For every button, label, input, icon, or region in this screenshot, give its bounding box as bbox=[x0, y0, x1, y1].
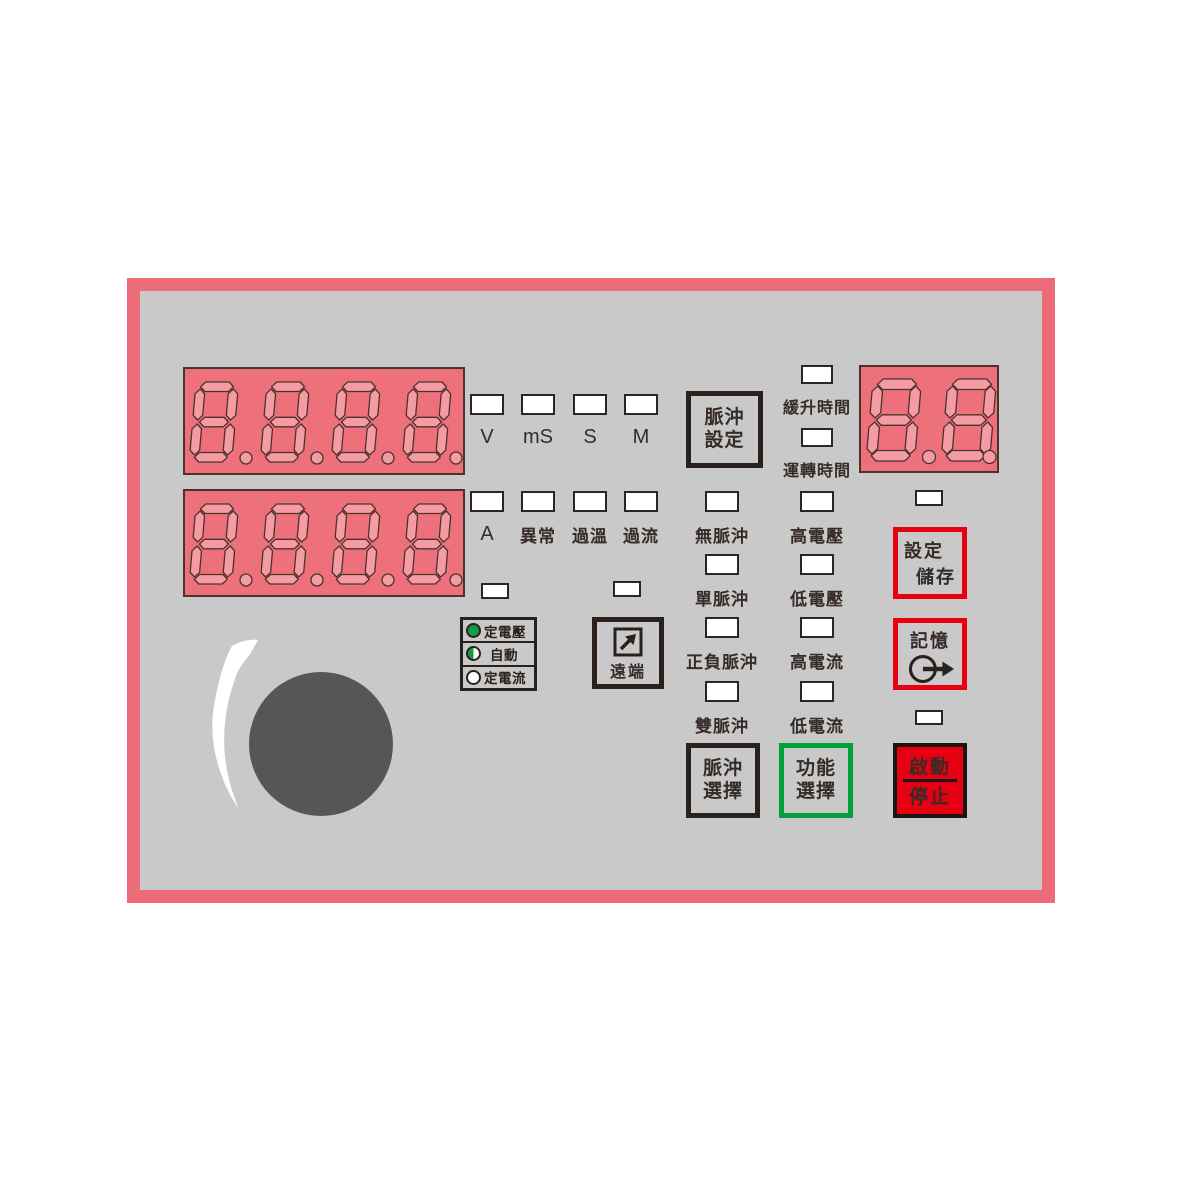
indicator-label: 正負脈沖 bbox=[686, 648, 758, 673]
indicator-label: 雙脈沖 bbox=[695, 712, 749, 737]
indicator-lamp bbox=[800, 617, 834, 638]
indicator-label: 高電流 bbox=[790, 648, 844, 673]
indicator-ramp-time: 緩升時間 bbox=[772, 365, 862, 418]
indicator-high-voltage: 高電壓 bbox=[772, 491, 862, 547]
indicator-label: M bbox=[633, 426, 650, 449]
indicator-label: 高電壓 bbox=[790, 522, 844, 547]
cv-led-icon bbox=[466, 623, 481, 638]
start-stop-button[interactable]: 啟動 停止 bbox=[893, 743, 967, 818]
indicator-lamp bbox=[705, 681, 739, 702]
auto-led-icon bbox=[466, 646, 481, 661]
indicator-label: S bbox=[583, 426, 596, 449]
indicator-low-current: 低電流 bbox=[772, 681, 862, 737]
button-label-line2: 選擇 bbox=[703, 781, 743, 803]
indicator-lamp bbox=[705, 491, 739, 512]
indicator-lamp-unlabeled bbox=[481, 583, 509, 599]
led-row-cv: 定電壓 bbox=[463, 620, 534, 643]
pulse-select-button[interactable]: 脈沖 選擇 bbox=[686, 743, 760, 818]
led-label: 定電壓 bbox=[484, 621, 526, 641]
cc-led-icon bbox=[466, 670, 481, 685]
button-label: 記憶 bbox=[910, 627, 950, 653]
rotary-knob[interactable] bbox=[249, 672, 393, 816]
led-row-cc: 定電流 bbox=[463, 667, 534, 688]
indicator-label: 低電流 bbox=[790, 712, 844, 737]
regulation-led-panel: 定電壓 自動 定電流 bbox=[460, 617, 537, 691]
indicator-lamp-unlabeled bbox=[915, 490, 943, 506]
button-label-line2: 設定 bbox=[704, 430, 744, 452]
indicator-unit-m: M bbox=[601, 394, 681, 449]
indicator-over-current: 過流 bbox=[601, 491, 681, 547]
led-row-auto: 自動 bbox=[463, 643, 534, 666]
button-label-line1: 脈沖 bbox=[703, 758, 743, 780]
pulse-setting-button[interactable]: 脈沖 設定 bbox=[686, 391, 763, 468]
indicator-label: 緩升時間 bbox=[783, 394, 851, 418]
indicator-lamp bbox=[624, 491, 658, 512]
button-label-stop: 停止 bbox=[909, 782, 951, 809]
indicator-single-pulse: 單脈沖 bbox=[677, 554, 767, 610]
button-label: 遠端 bbox=[610, 658, 646, 682]
remote-button[interactable]: 遠端 bbox=[592, 617, 664, 689]
indicator-label: 無脈沖 bbox=[695, 522, 749, 547]
set-store-button[interactable]: 設定 儲存 bbox=[893, 527, 967, 599]
button-label-start: 啟動 bbox=[909, 752, 951, 779]
indicator-lamp bbox=[800, 554, 834, 575]
indicator-lamp bbox=[800, 681, 834, 702]
indicator-label: V bbox=[480, 426, 493, 449]
seven-segment-display-memory bbox=[859, 365, 999, 473]
indicator-run-time: 運轉時間 bbox=[772, 428, 862, 481]
indicator-lamp-unlabeled bbox=[915, 710, 943, 725]
seven-segment-display-upper bbox=[183, 367, 465, 475]
indicator-double-pulse: 雙脈沖 bbox=[677, 681, 767, 737]
indicator-pos-neg-pulse: 正負脈沖 bbox=[677, 617, 767, 673]
seven-segment-display-lower bbox=[183, 489, 465, 597]
indicator-low-voltage: 低電壓 bbox=[772, 554, 862, 610]
indicator-lamp bbox=[801, 365, 833, 384]
indicator-lamp bbox=[800, 491, 834, 512]
indicator-label: mS bbox=[523, 426, 553, 449]
function-select-button[interactable]: 功能 選擇 bbox=[779, 743, 853, 818]
led-label: 定電流 bbox=[484, 667, 526, 687]
page-background: V mS S M A 異常 過溫 過流 緩升時間 運轉時間 無脈沖 bbox=[0, 0, 1182, 1182]
memory-button[interactable]: 記憶 bbox=[893, 618, 967, 690]
indicator-high-current: 高電流 bbox=[772, 617, 862, 673]
button-label-store: 儲存 bbox=[916, 563, 956, 589]
remote-arrow-icon bbox=[613, 627, 643, 657]
led-label: 自動 bbox=[490, 644, 518, 664]
indicator-label: 單脈沖 bbox=[695, 585, 749, 610]
indicator-label: 低電壓 bbox=[790, 585, 844, 610]
button-label-line1: 功能 bbox=[796, 758, 836, 780]
indicator-lamp bbox=[705, 554, 739, 575]
memory-recall-icon bbox=[901, 653, 959, 685]
button-label-set: 設定 bbox=[904, 537, 944, 563]
indicator-no-pulse: 無脈沖 bbox=[677, 491, 767, 547]
indicator-lamp-unlabeled bbox=[613, 581, 641, 597]
button-label-line2: 選擇 bbox=[796, 781, 836, 803]
indicator-label: A bbox=[480, 523, 493, 546]
indicator-lamp bbox=[801, 428, 833, 447]
indicator-label: 過流 bbox=[623, 522, 659, 547]
button-label-line1: 脈沖 bbox=[704, 407, 744, 429]
indicator-label: 運轉時間 bbox=[783, 457, 851, 481]
indicator-lamp bbox=[705, 617, 739, 638]
indicator-lamp bbox=[624, 394, 658, 415]
